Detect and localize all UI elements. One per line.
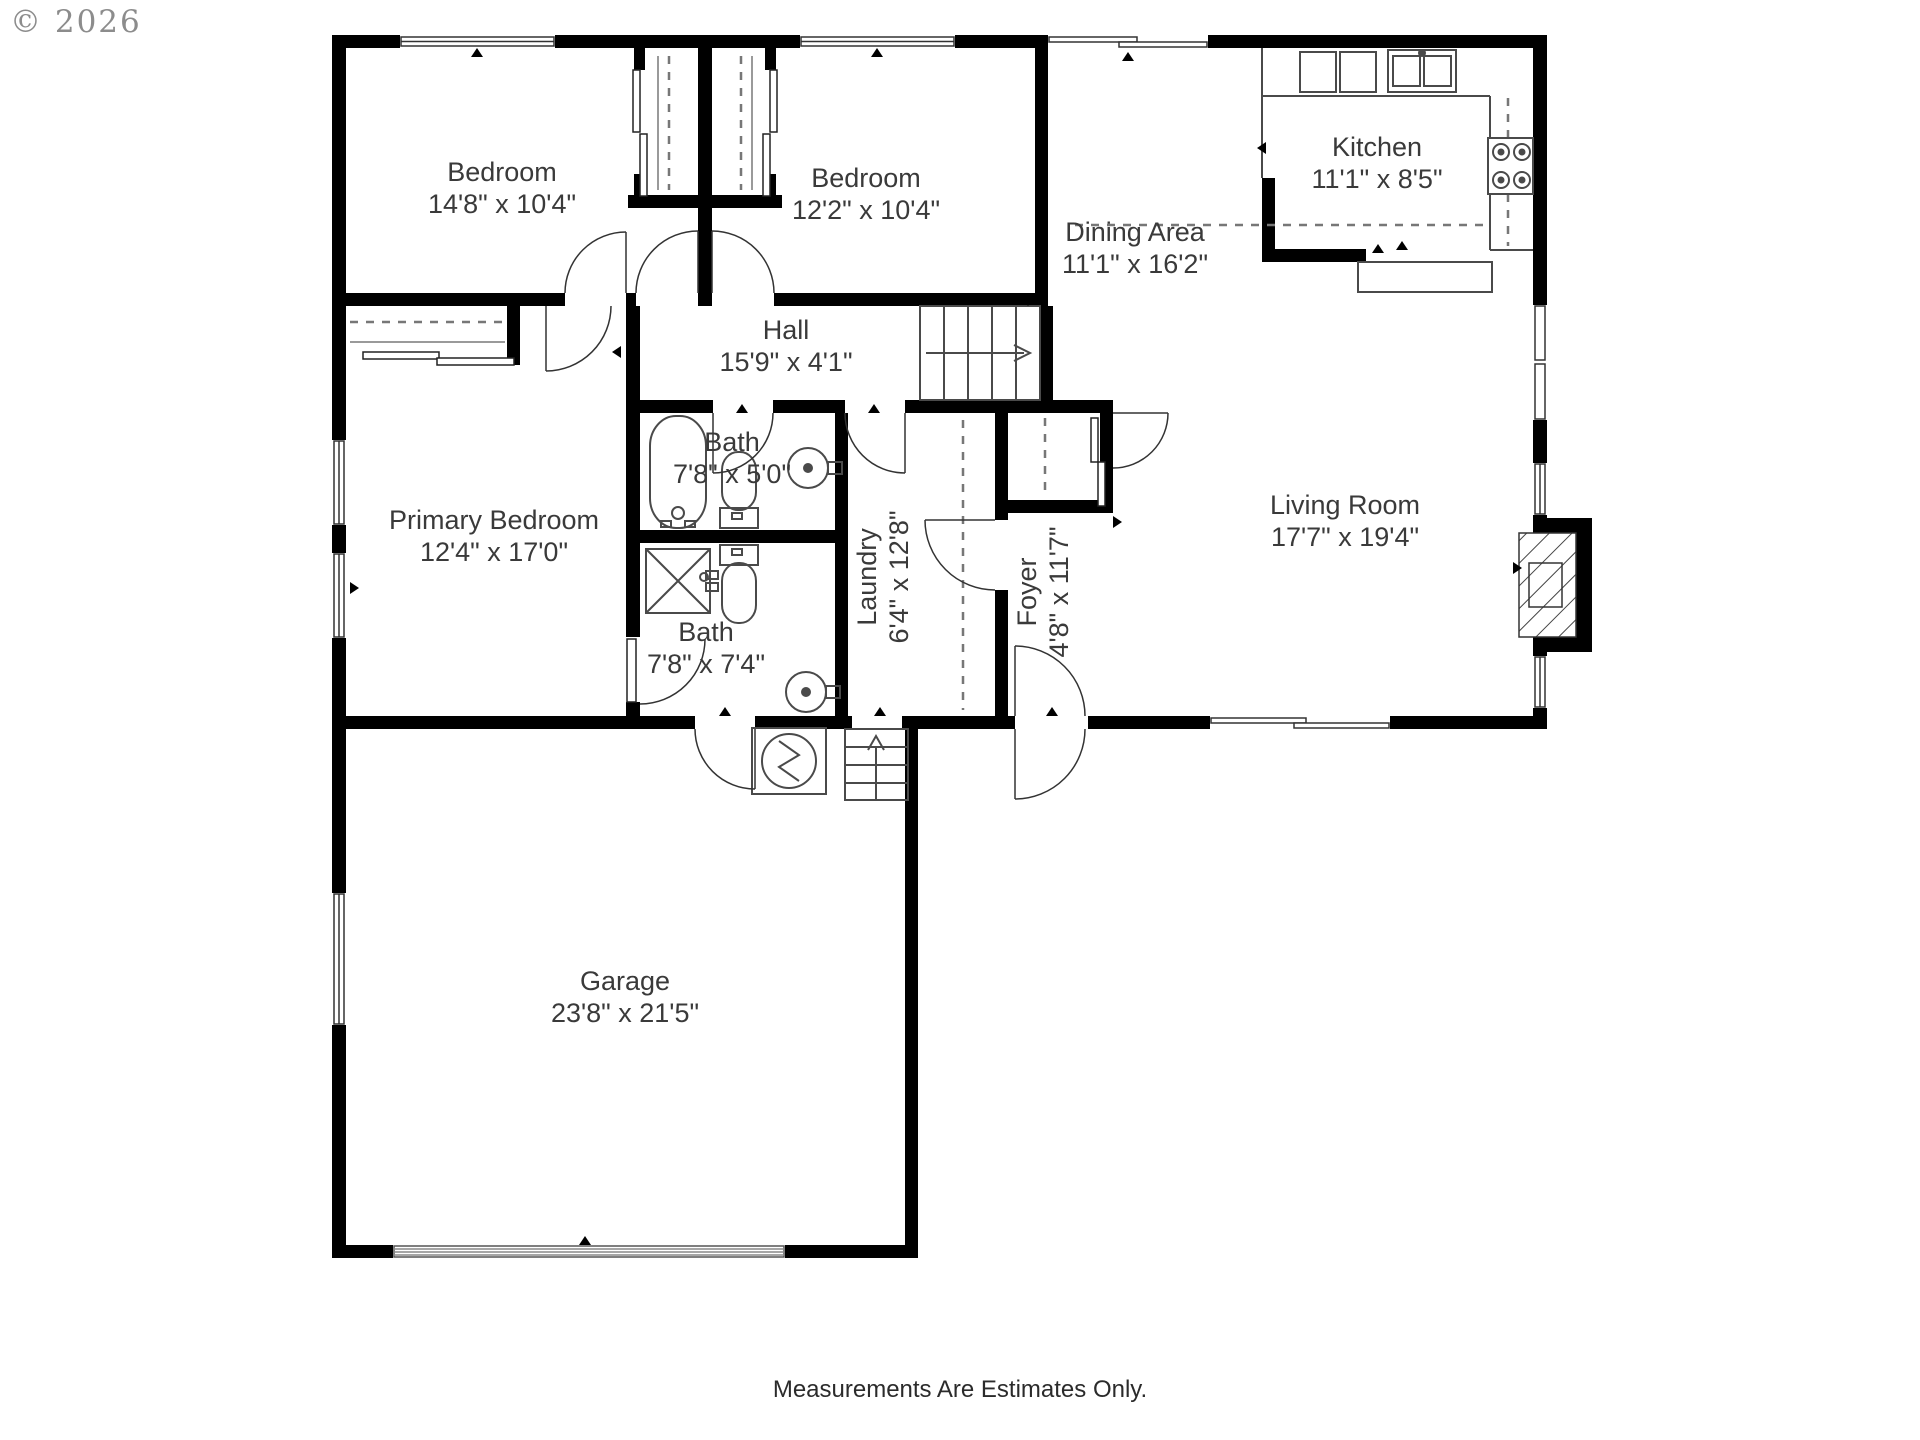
fireplace: [1519, 518, 1592, 652]
room-dims: 4'8" x 11'7": [1043, 526, 1075, 657]
room-dims: 15'9" x 4'1": [719, 346, 852, 378]
room-dims: 7'8" x 7'4": [647, 648, 765, 680]
stairs-hall: [920, 306, 1040, 400]
floor-plan-drawing: [0, 0, 1920, 1440]
room-label-primary-bedroom: Primary Bedroom 12'4" x 17'0": [389, 504, 599, 568]
room-name: Living Room: [1270, 489, 1420, 521]
room-name: Dining Area: [1062, 216, 1208, 248]
room-dims: 14'8" x 10'4": [428, 188, 576, 220]
room-label-dining-area: Dining Area 11'1" x 16'2": [1062, 216, 1208, 280]
room-label-bath-upper: Bath 7'8" x 5'0": [673, 426, 791, 490]
room-dims: 11'1" x 16'2": [1062, 248, 1208, 280]
room-label-laundry: Laundry 6'4" x 12'8": [851, 510, 915, 643]
garage-door: [393, 1245, 785, 1258]
room-dims: 6'4" x 12'8": [883, 510, 915, 643]
room-name: Kitchen: [1311, 131, 1442, 163]
entry-steps: [845, 729, 908, 800]
sink-upper: [788, 448, 842, 488]
room-name: Hall: [719, 314, 852, 346]
room-label-kitchen: Kitchen 11'1" x 8'5": [1311, 131, 1442, 195]
room-name: Bath: [647, 616, 765, 648]
toilet-lower: [720, 545, 758, 623]
room-name: Garage: [551, 965, 699, 997]
room-label-living-room: Living Room 17'7" x 19'4": [1270, 489, 1420, 553]
marker-arrows: [350, 48, 1522, 1245]
room-label-foyer: Foyer 4'8" x 11'7": [1011, 526, 1075, 657]
room-dims: 12'2" x 10'4": [792, 194, 940, 226]
stove: [1488, 138, 1533, 194]
room-label-bedroom-2: Bedroom 12'2" x 10'4": [792, 162, 940, 226]
shower: [646, 549, 718, 613]
room-name: Primary Bedroom: [389, 504, 599, 536]
room-dims: 12'4" x 17'0": [389, 536, 599, 568]
room-name: Foyer: [1011, 526, 1043, 657]
room-dims: 23'8" x 21'5": [551, 997, 699, 1029]
sink-lower: [786, 672, 840, 712]
room-dims: 7'8" x 5'0": [673, 458, 791, 490]
room-name: Bedroom: [428, 156, 576, 188]
room-dims: 17'7" x 19'4": [1270, 521, 1420, 553]
room-label-garage: Garage 23'8" x 21'5": [551, 965, 699, 1029]
room-name: Laundry: [851, 510, 883, 643]
kitchen-sink: [1388, 50, 1456, 92]
room-label-bath-lower: Bath 7'8" x 7'4": [647, 616, 765, 680]
disclaimer-text: Measurements Are Estimates Only.: [773, 1376, 1147, 1404]
copyright-watermark: © 2026: [10, 4, 142, 40]
room-name: Bedroom: [792, 162, 940, 194]
room-label-bedroom-1: Bedroom 14'8" x 10'4": [428, 156, 576, 220]
room-dims: 11'1" x 8'5": [1311, 163, 1442, 195]
room-name: Bath: [673, 426, 791, 458]
water-heater: [752, 728, 826, 794]
room-label-hall: Hall 15'9" x 4'1": [719, 314, 852, 378]
